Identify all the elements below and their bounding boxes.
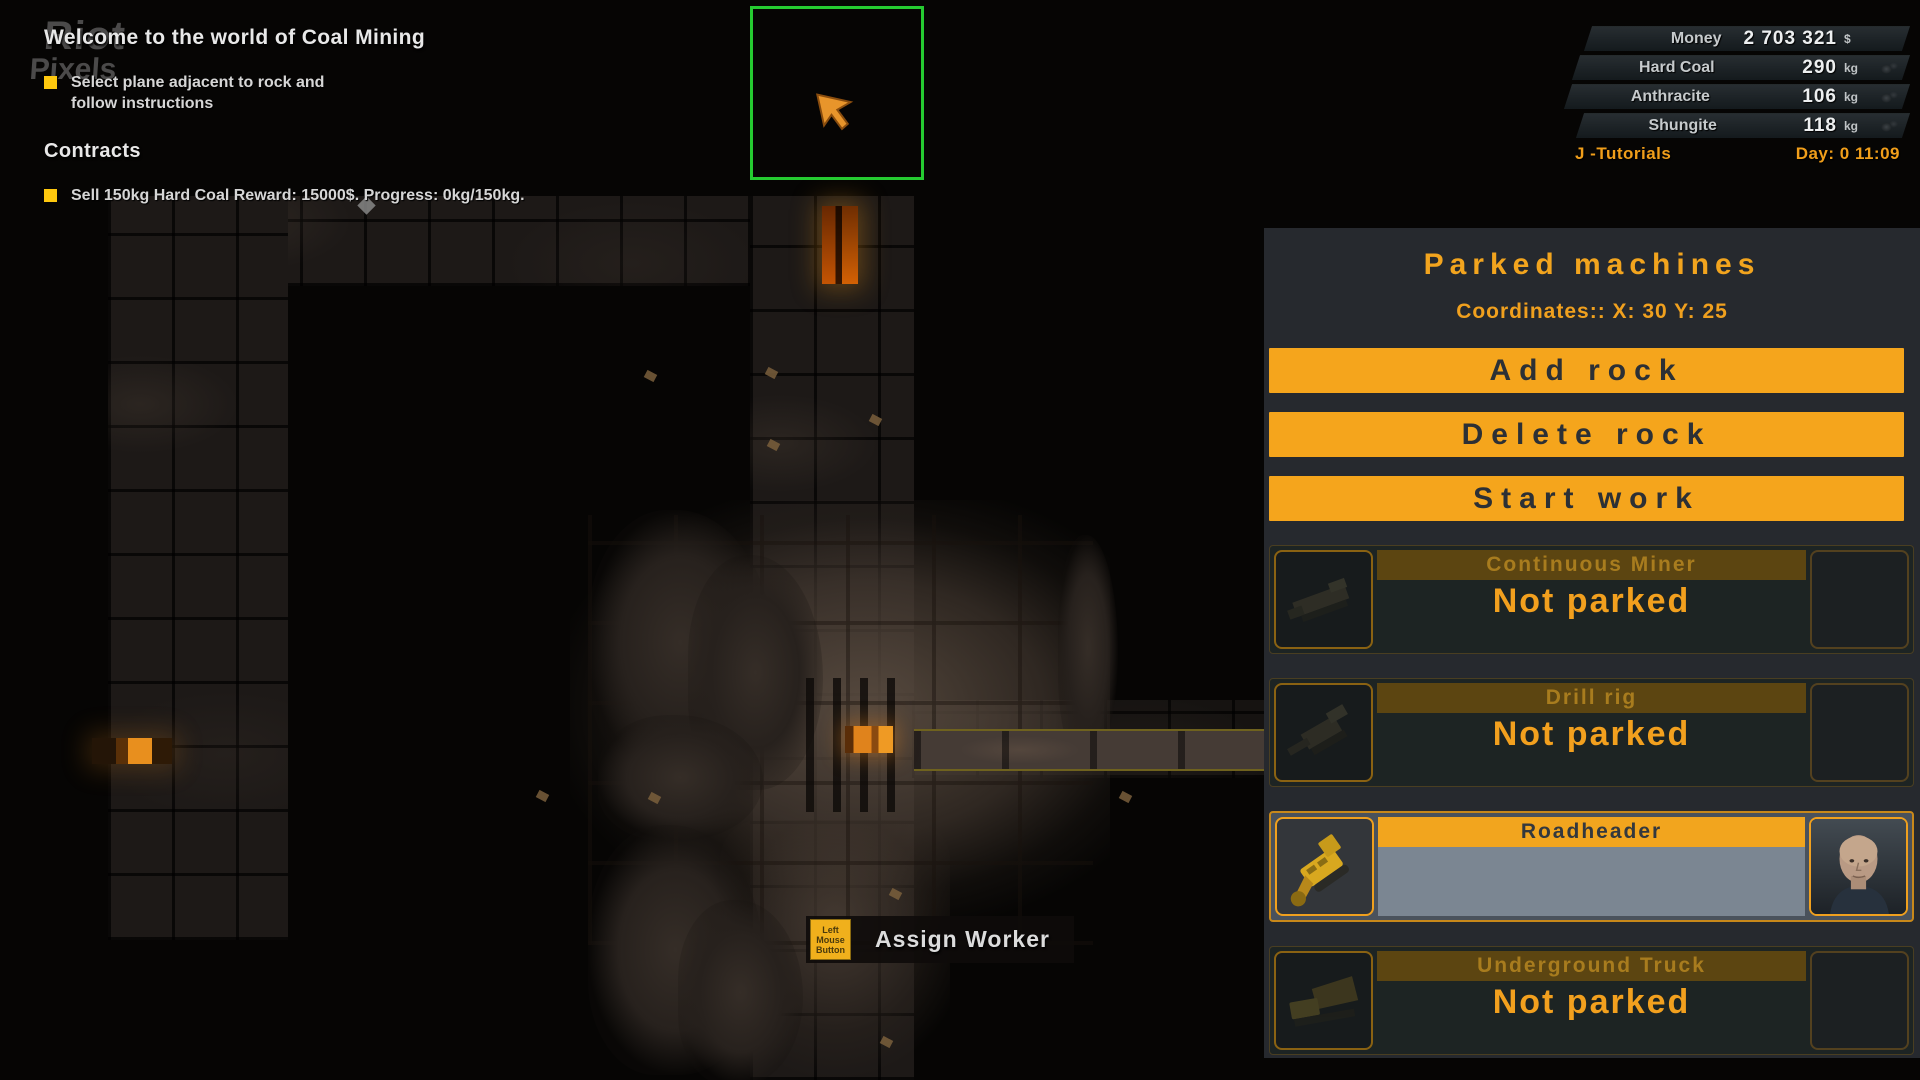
money-icon — [1876, 29, 1902, 49]
resource-row-money: Money 2 703 321 $ — [1588, 26, 1906, 51]
game-screen: Riot Pixels Welcome to the world of Coal… — [0, 0, 1920, 1080]
resource-row-anthracite: Anthracite 106 kg — [1568, 84, 1906, 109]
coordinates-label: Coordinates:: X: 30 Y: 25 — [1264, 300, 1920, 324]
rock-blob — [598, 715, 763, 840]
machine-name: Underground Truck — [1377, 951, 1806, 981]
resource-row-hard-coal: Hard Coal 290 kg — [1576, 55, 1906, 80]
resource-unit: kg — [1837, 61, 1876, 75]
assigned-worker-portrait[interactable] — [1809, 817, 1908, 916]
underground-truck-icon — [1274, 951, 1373, 1050]
resource-unit: kg — [1837, 119, 1876, 133]
worker-slot-empty[interactable] — [1810, 951, 1909, 1050]
machine-info: Drill rig Not parked — [1377, 679, 1806, 786]
resource-label: Anthracite — [1568, 88, 1710, 106]
debris — [536, 790, 549, 802]
coal-icon — [1876, 58, 1902, 78]
resource-value: 118 — [1717, 115, 1837, 137]
resources-footer: J -Tutorials Day: 0 11:09 — [1561, 144, 1906, 164]
assign-worker-label: Assign Worker — [851, 926, 1074, 953]
machine-name: Roadheader — [1378, 817, 1805, 847]
worker-slot-empty[interactable] — [1810, 683, 1909, 782]
contract-text: Sell 150kg Hard Coal Reward: 15000$. Pro… — [71, 185, 525, 206]
panel-title: Parked machines — [1264, 248, 1920, 282]
machine-row-continuous-miner[interactable]: Continuous Miner Not parked — [1269, 545, 1914, 654]
machine-info: Continuous Miner Not parked — [1377, 546, 1806, 653]
debris — [644, 370, 657, 382]
day-time-label: Day: 0 11:09 — [1796, 144, 1900, 164]
machine-status: Not parked — [1377, 983, 1806, 1022]
selection-box[interactable] — [750, 6, 924, 180]
delete-rock-button[interactable]: Delete rock — [1269, 412, 1904, 457]
contract-row: Sell 150kg Hard Coal Reward: 15000$. Pro… — [44, 185, 525, 206]
machine-sprite-roadheader[interactable] — [845, 726, 893, 753]
machine-row-drill-rig[interactable]: Drill rig Not parked — [1269, 678, 1914, 787]
resource-unit: kg — [1837, 90, 1876, 104]
roadheader-icon — [1275, 817, 1374, 916]
conveyor-belt — [914, 729, 1266, 771]
tutorial-title: Welcome to the world of Coal Mining — [44, 26, 525, 50]
resources-panel: Money 2 703 321 $ Hard Coal 290 kg Anthr… — [1561, 26, 1906, 164]
assign-worker-tooltip: Left Mouse Button Assign Worker — [806, 916, 1074, 963]
machine-info: Roadheader — [1378, 813, 1805, 920]
bullet-icon — [44, 189, 57, 202]
shungite-icon — [1876, 116, 1902, 136]
resource-value: 290 — [1715, 57, 1837, 79]
resource-label: Money — [1588, 30, 1722, 48]
resource-row-shungite: Shungite 118 kg — [1580, 113, 1906, 138]
bullet-icon — [44, 76, 57, 89]
resource-value: 106 — [1710, 86, 1837, 108]
machine-body — [1378, 847, 1805, 916]
tutorial-block: Welcome to the world of Coal Mining Sele… — [44, 26, 525, 206]
add-rock-button[interactable]: Add rock — [1269, 348, 1904, 393]
machine-row-roadheader[interactable]: Roadheader — [1269, 811, 1914, 922]
cursor-icon — [815, 89, 857, 131]
continuous-miner-icon — [1274, 550, 1373, 649]
tutorials-hotkey-label[interactable]: J -Tutorials — [1575, 144, 1671, 164]
tutorial-instruction: Select plane adjacent to rock and follow… — [71, 72, 371, 114]
machine-status: Not parked — [1377, 582, 1806, 621]
machine-name: Continuous Miner — [1377, 550, 1806, 580]
worker-slot-empty[interactable] — [1810, 550, 1909, 649]
machine-info: Underground Truck Not parked — [1377, 947, 1806, 1054]
machine-name: Drill rig — [1377, 683, 1806, 713]
tutorial-instruction-row: Select plane adjacent to rock and follow… — [44, 72, 525, 114]
anthracite-icon — [1876, 87, 1902, 107]
resource-value: 2 703 321 — [1722, 28, 1837, 50]
debris — [1119, 791, 1132, 803]
left-mouse-button-key-icon: Left Mouse Button — [810, 919, 851, 960]
start-work-button[interactable]: Start work — [1269, 476, 1904, 521]
resource-label: Hard Coal — [1576, 59, 1715, 77]
resource-unit: $ — [1837, 32, 1876, 46]
contracts-title: Contracts — [44, 140, 525, 163]
resource-label: Shungite — [1580, 117, 1717, 135]
machine-sprite-feeder[interactable] — [822, 206, 858, 284]
machine-sprite-miner[interactable] — [92, 738, 172, 764]
corridor-left — [108, 196, 288, 940]
parked-machines-panel: Parked machines Coordinates:: X: 30 Y: 2… — [1264, 228, 1920, 1058]
machine-status: Not parked — [1377, 715, 1806, 754]
machine-row-underground-truck[interactable]: Underground Truck Not parked — [1269, 946, 1914, 1055]
drill-rig-icon — [1274, 683, 1373, 782]
